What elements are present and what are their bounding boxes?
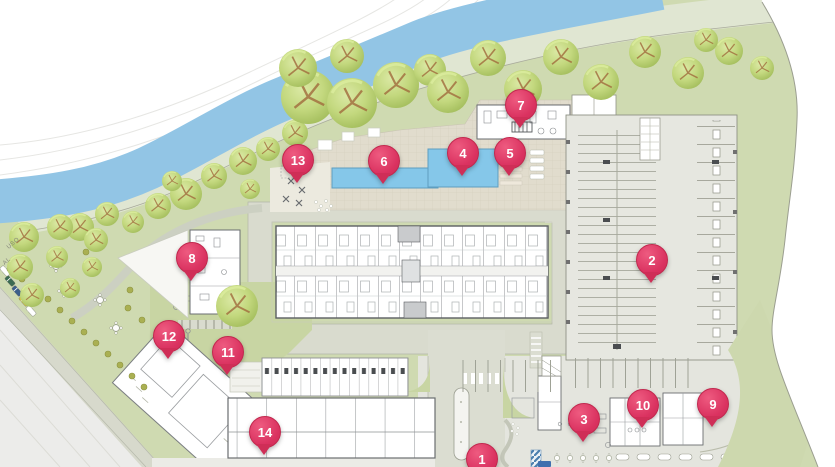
map-pin-8[interactable]: 8 <box>176 242 208 286</box>
pin-tail <box>375 173 391 184</box>
map-pin-7[interactable]: 7 <box>505 89 537 133</box>
pin-tail <box>704 416 720 427</box>
pin-head: 1 <box>466 443 498 467</box>
map-pin-12[interactable]: 12 <box>153 320 185 364</box>
pin-tail <box>501 165 517 176</box>
map-pin-5[interactable]: 5 <box>494 137 526 181</box>
map-pin-6[interactable]: 6 <box>368 145 400 189</box>
pin-tail <box>256 444 272 455</box>
map-pin-3[interactable]: 3 <box>568 403 600 447</box>
map-pin-14[interactable]: 14 <box>249 416 281 460</box>
pin-tail <box>160 348 176 359</box>
map-pin-9[interactable]: 9 <box>697 388 729 432</box>
pin-tail <box>219 364 235 375</box>
pin-tail <box>512 117 528 128</box>
apartment-building <box>272 222 552 322</box>
map-pin-13[interactable]: 13 <box>282 144 314 188</box>
pin-tail <box>643 272 659 283</box>
pin-tail <box>289 172 305 183</box>
map-pin-1[interactable]: 1 <box>466 443 498 467</box>
pin-tail <box>575 431 591 442</box>
map-pin-10[interactable]: 10 <box>627 389 659 433</box>
pin-tail <box>454 165 470 176</box>
site-plan-canvas: USO AL 1 2 3 4 5 6 7 8 9 10 11 12 13 14 <box>0 0 835 467</box>
map-pin-2[interactable]: 2 <box>636 244 668 288</box>
pin-tail <box>634 417 650 428</box>
map-pin-11[interactable]: 11 <box>212 336 244 380</box>
map-pin-4[interactable]: 4 <box>447 137 479 181</box>
parking-lot <box>566 115 737 360</box>
pin-tail <box>183 270 199 281</box>
